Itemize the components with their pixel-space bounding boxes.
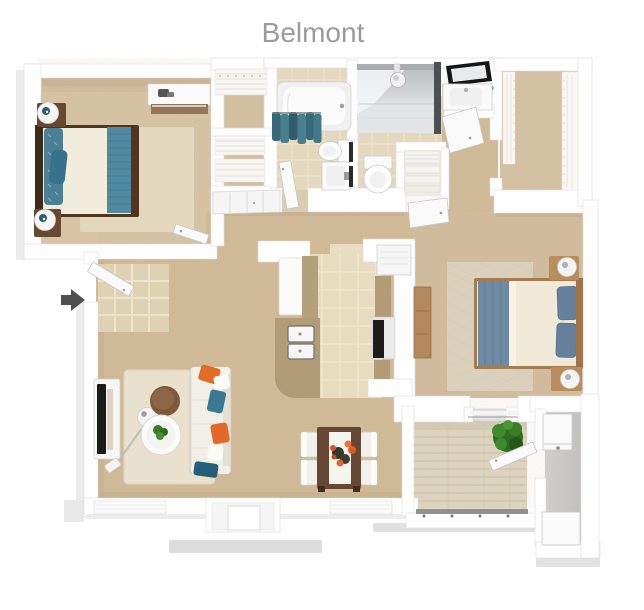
svg-text:Belmont: Belmont	[262, 17, 365, 48]
